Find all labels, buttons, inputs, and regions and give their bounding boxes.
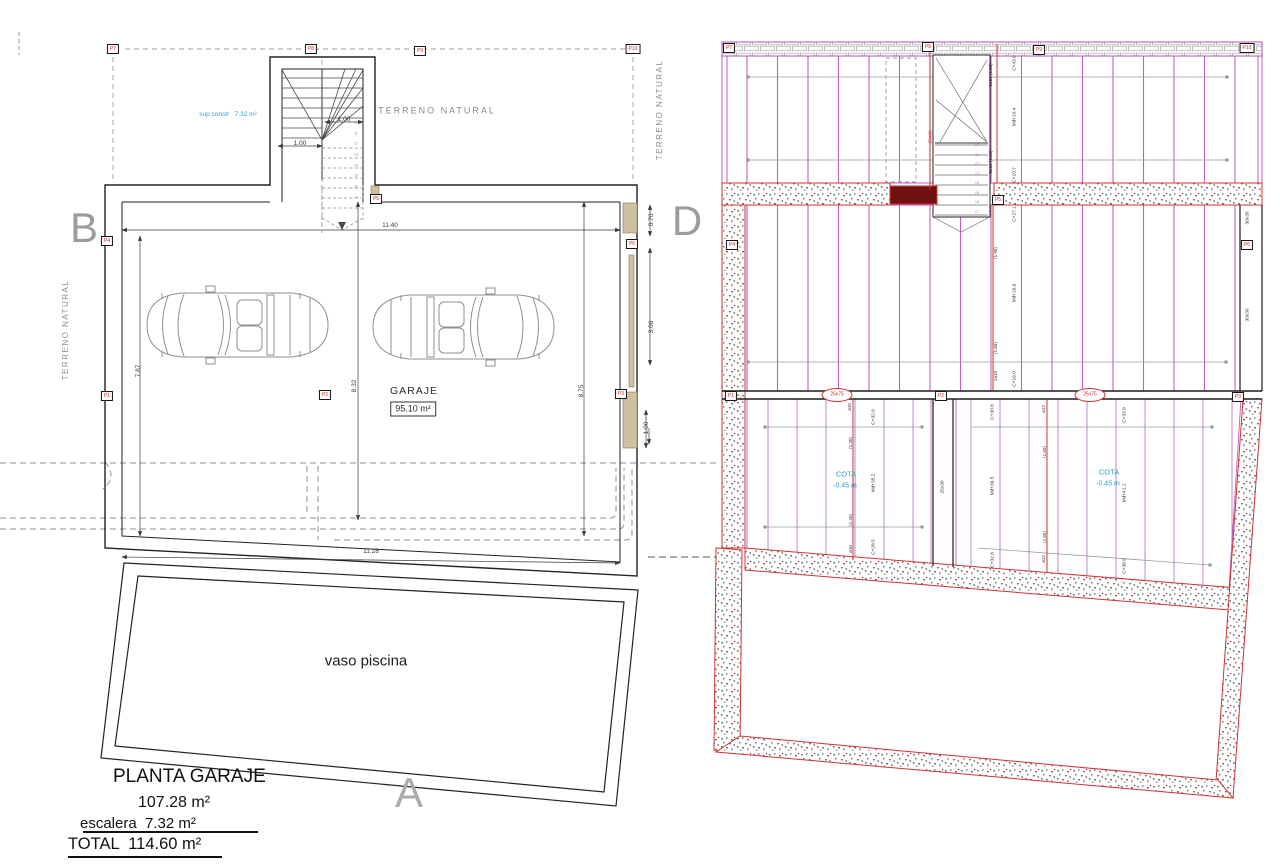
pillar-marker-p2-left: P2 [319, 390, 331, 400]
pillar-marker-p4-right: P4 [726, 240, 738, 250]
plan-stairs-area: escalera 7.32 m² [80, 815, 196, 832]
staircase-left-plan [282, 69, 363, 230]
pillar-marker-p9-right: P9 [1033, 45, 1045, 55]
pillar-marker-p10-left: P10 [626, 44, 641, 54]
pillar-marker-p4-left: P4 [101, 236, 113, 246]
car-top-view-2 [373, 288, 554, 366]
drain-dashed-lines [0, 462, 718, 557]
staircase-right-plan [933, 55, 990, 232]
title-block-divider-bottom [68, 856, 222, 858]
pillar-marker-p8-right: P8 [922, 42, 934, 52]
car-top-view-1 [147, 286, 328, 364]
plan-title: PLANTA GARAJE [113, 766, 266, 788]
pillar-marker-p6-left: P6 [626, 239, 638, 249]
pillar-marker-p2-right: P2 [935, 391, 947, 401]
top-wall-brick-band [722, 42, 1262, 56]
floor-plan-drawing [0, 0, 1280, 865]
title-block-divider [83, 831, 258, 833]
plan-total-area: TOTAL 114.60 m² [68, 835, 201, 854]
blueprint-canvas: PLANTA GARAJE 107.28 m² escalera 7.32 m²… [0, 0, 1280, 865]
pillar-marker-p5-left: P5 [370, 194, 382, 204]
plan-area: 107.28 m² [138, 794, 210, 812]
pillar-marker-p7-right: P7 [723, 43, 735, 53]
pillar-marker-p10-right: P10 [1240, 43, 1255, 53]
pillar-marker-p3-right: P3 [1232, 392, 1244, 402]
pillar-marker-p7-left: P7 [107, 44, 119, 54]
right-plan [714, 42, 1262, 798]
pillar-marker-p8-left: P8 [305, 44, 317, 54]
pillar-marker-p5-right: P5 [992, 195, 1004, 205]
pillar-marker-p1-left: P1 [101, 391, 113, 401]
left-plan [0, 32, 718, 806]
dimension-lines [122, 122, 650, 563]
pillar-marker-p1-right: P1 [725, 391, 737, 401]
garage-walls [105, 57, 637, 576]
pillar-marker-p3-left: P3 [615, 389, 627, 399]
axis-dashed-lines [113, 49, 633, 233]
pillar-marker-p6-right: P6 [1241, 240, 1253, 250]
pillar-marker-p9-left: P9 [414, 46, 426, 56]
